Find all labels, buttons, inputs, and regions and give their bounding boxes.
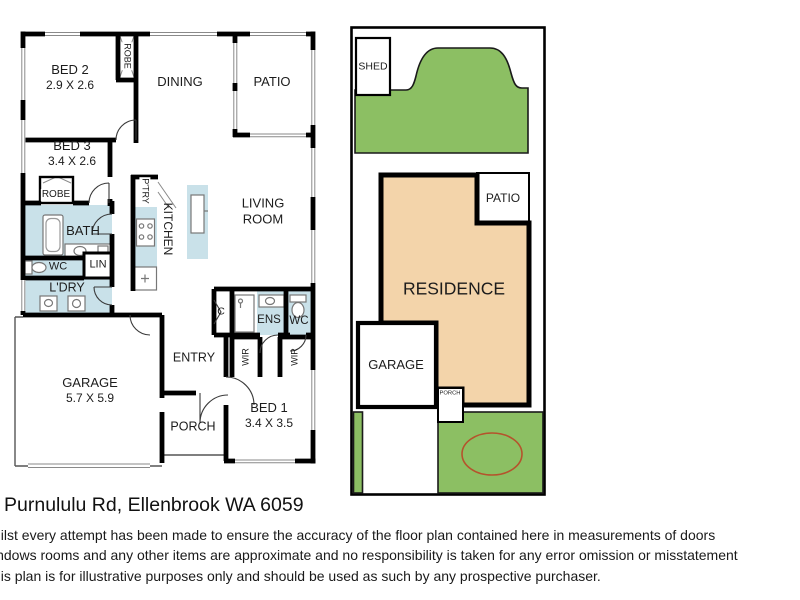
room-label-porch: PORCH (170, 420, 215, 435)
room-label-entry: ENTRY (173, 351, 215, 366)
room-label-bed1: BED 13.4 X 3.5 (245, 400, 293, 430)
garage-door-icon (28, 464, 150, 468)
disclaimer-line-2: indows rooms and any other items are app… (0, 545, 738, 565)
site-label-residence: RESIDENCE (403, 279, 505, 300)
site-label-porch: PORCH (440, 391, 461, 398)
site-plan: SHED PATIO RESIDENCE GARAGE PORCH (350, 26, 546, 496)
room-label-linen: LIN (89, 258, 106, 271)
room-label-robe-bed3: ROBE (41, 189, 71, 201)
room-label-ens-wc: WC (289, 315, 308, 329)
room-label-living: LIVING ROOM (227, 195, 299, 226)
ens-toilet-icon (290, 295, 306, 302)
room-label-patio: PATIO (253, 74, 290, 90)
room-label-robe-top: ROBE (122, 42, 133, 70)
room-label-dining: DINING (157, 74, 203, 90)
washer-icon (68, 296, 85, 311)
site-label-shed: SHED (358, 61, 387, 74)
disclaimer-line-1: hilst every attempt has been made to ens… (0, 525, 738, 545)
front-lawn (438, 412, 543, 493)
disclaimer-line-3: his plan is for illustrative purposes on… (0, 566, 738, 586)
room-label-kitchen: KITCHEN (161, 203, 175, 256)
room-label-wc: WC (49, 260, 67, 273)
site-label-patio: PATIO (486, 191, 520, 205)
floor-plan: BED 22.9 X 2.6 ROBE DINING PATIO BED 33.… (10, 25, 320, 470)
room-label-bath: BATH (66, 223, 100, 239)
floorplan-page: { "address": "Purnululu Rd, Ellenbrook W… (0, 0, 800, 600)
room-label-wir-right: WIR (290, 348, 301, 366)
disclaimer: hilst every attempt has been made to ens… (0, 525, 738, 586)
room-label-wir-left: WIR (241, 348, 252, 366)
shower-icon (235, 295, 254, 332)
door-arcs (89, 120, 306, 423)
room-label-bed3: BED 33.4 X 2.6 (48, 138, 96, 168)
address: Purnululu Rd, Ellenbrook WA 6059 (4, 494, 304, 517)
room-label-bed2: BED 22.9 X 2.6 (46, 62, 94, 92)
room-label-ensuite: ENS (257, 314, 281, 328)
room-label-laundry: L'DRY (49, 281, 85, 296)
island-sink-icon (191, 195, 204, 233)
side-lawn-strip (354, 412, 363, 493)
site-label-garage: GARAGE (368, 357, 424, 373)
room-label-pantry: P'TRY (140, 177, 151, 205)
site-plan-drawing (350, 26, 546, 496)
room-label-cupboard: C (217, 306, 225, 319)
cooktop-icon (137, 219, 155, 246)
room-label-garage: GARAGE5.7 X 5.9 (62, 375, 118, 405)
toilet-icon (25, 261, 32, 274)
